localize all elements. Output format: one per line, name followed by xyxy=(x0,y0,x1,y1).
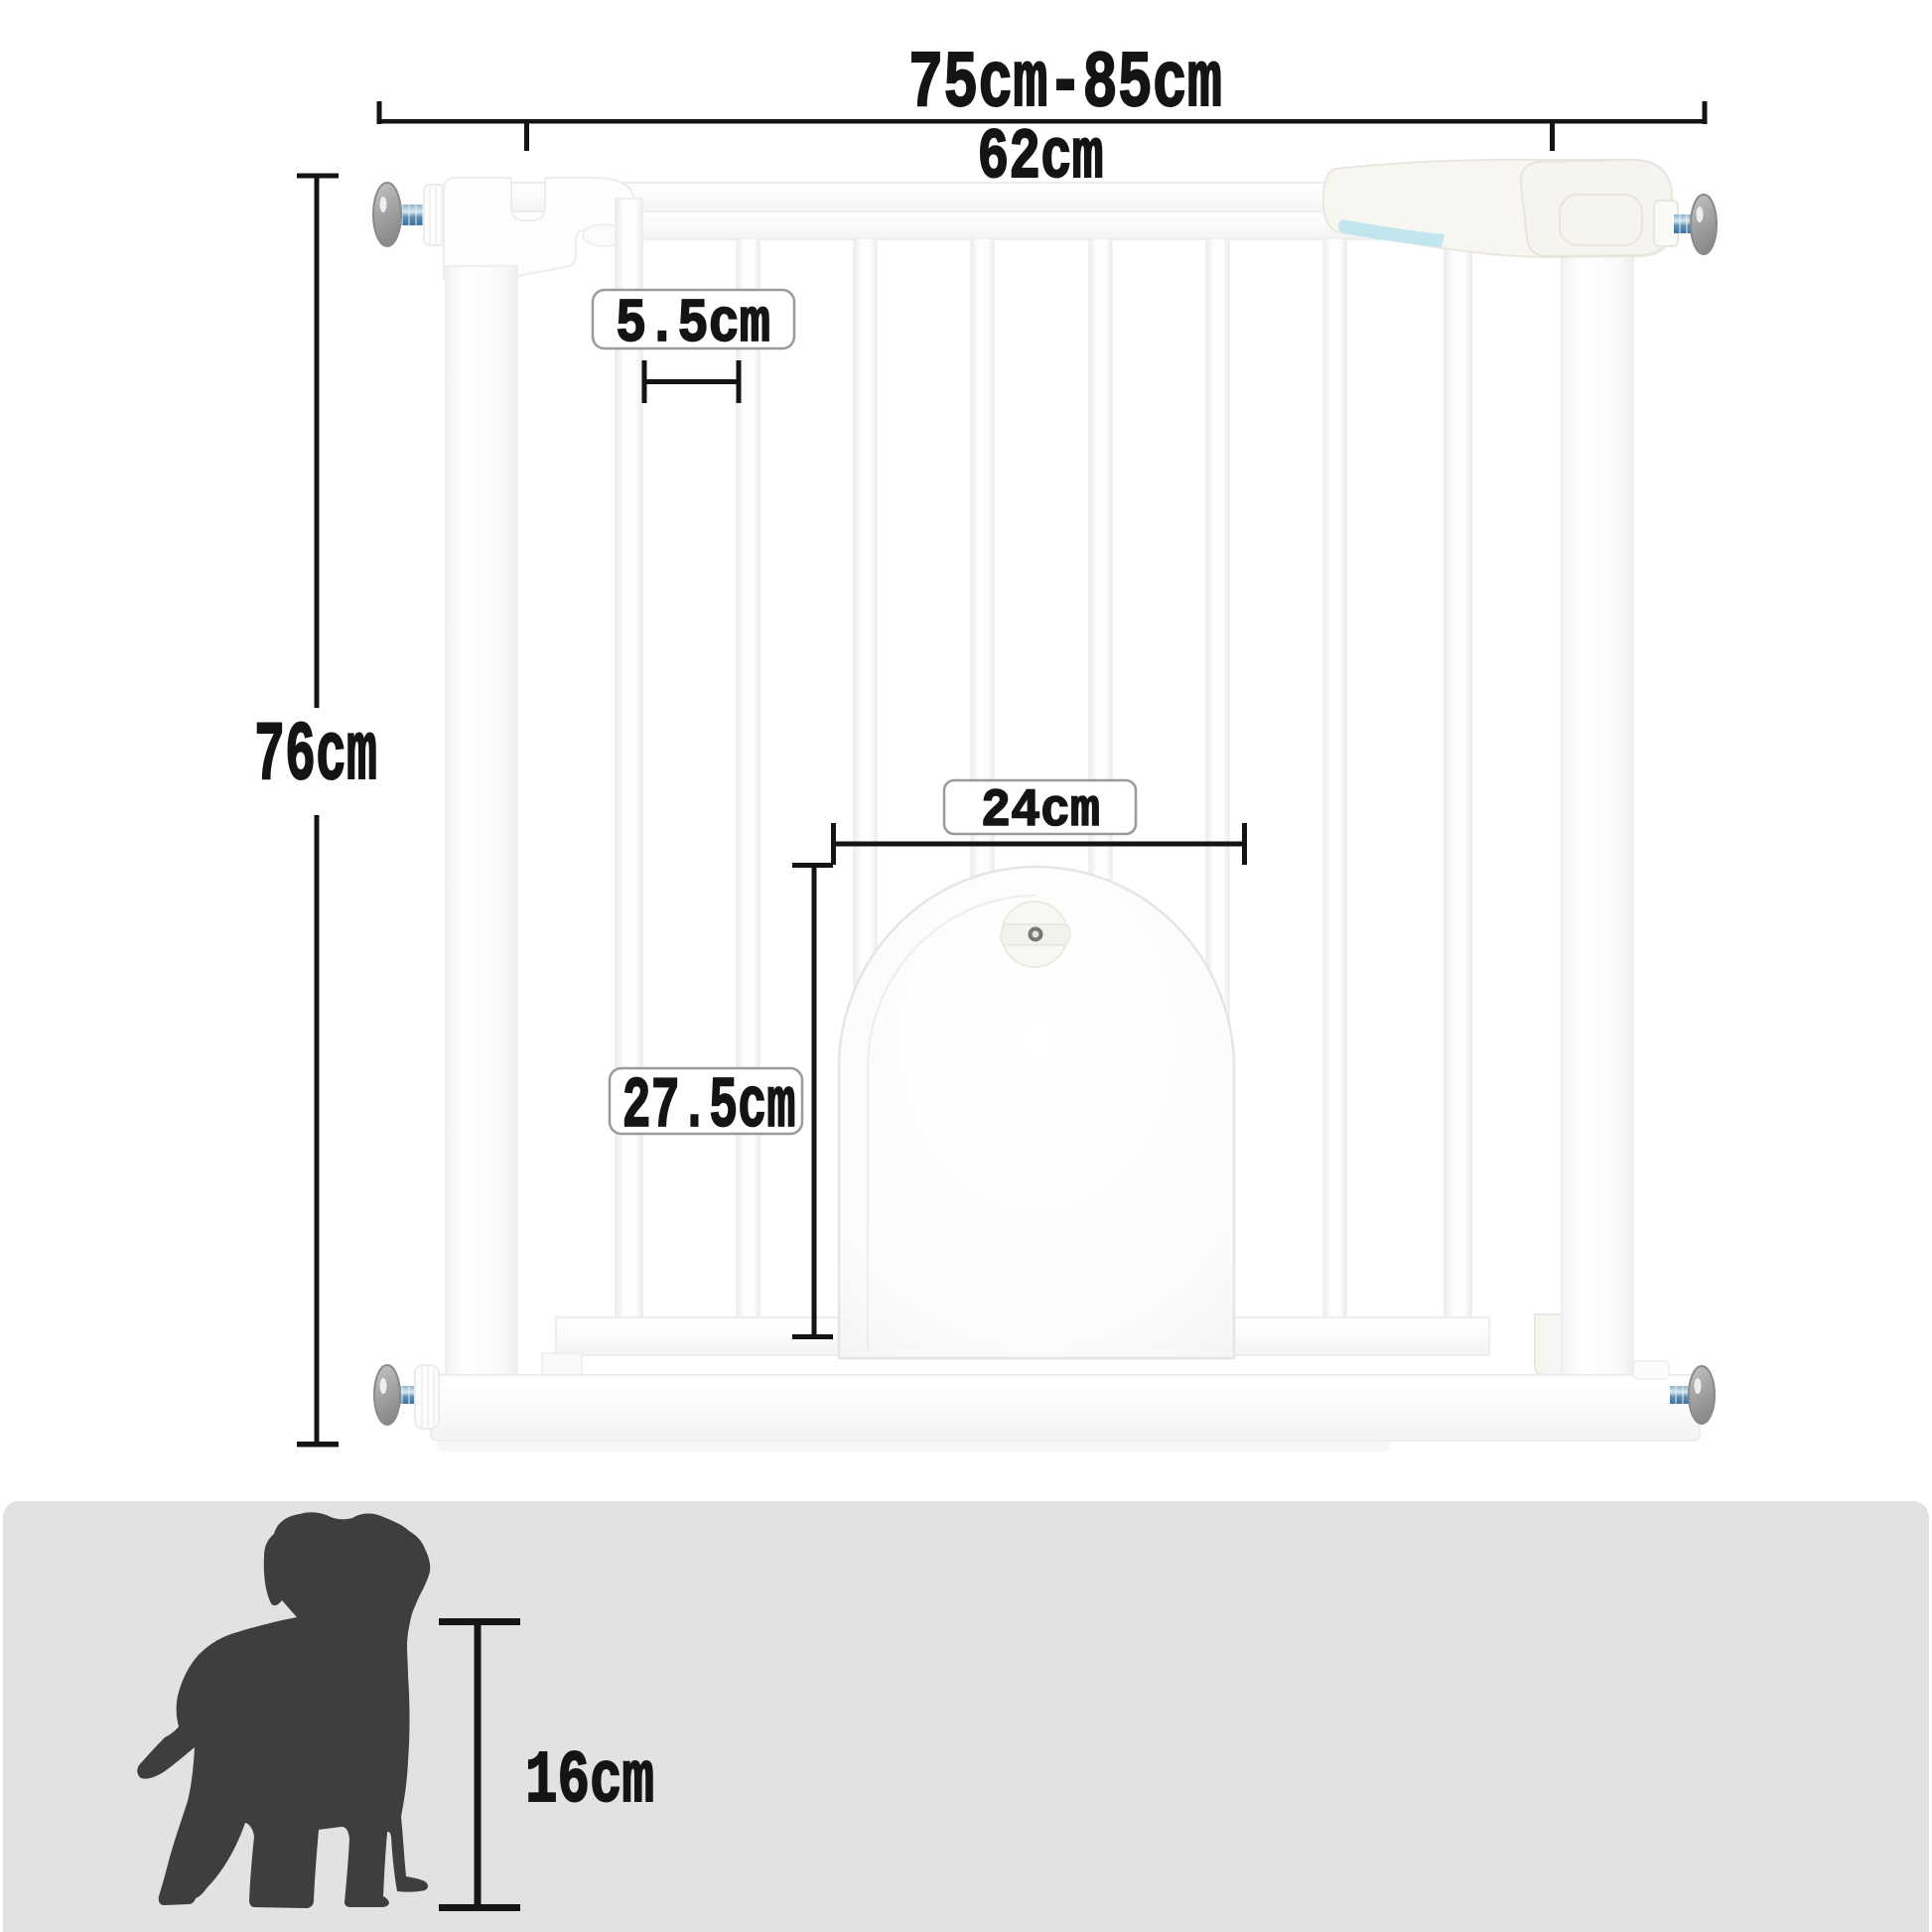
svg-text:5.5cm: 5.5cm xyxy=(616,289,770,359)
svg-text:62cm: 62cm xyxy=(978,119,1104,199)
svg-text:24cm: 24cm xyxy=(981,781,1100,842)
svg-text:27.5cm: 27.5cm xyxy=(622,1066,796,1148)
svg-text:75cm-85cm: 75cm-85cm xyxy=(908,40,1222,130)
svg-text:76cm: 76cm xyxy=(254,710,377,804)
svg-text:16cm: 16cm xyxy=(525,1740,654,1824)
